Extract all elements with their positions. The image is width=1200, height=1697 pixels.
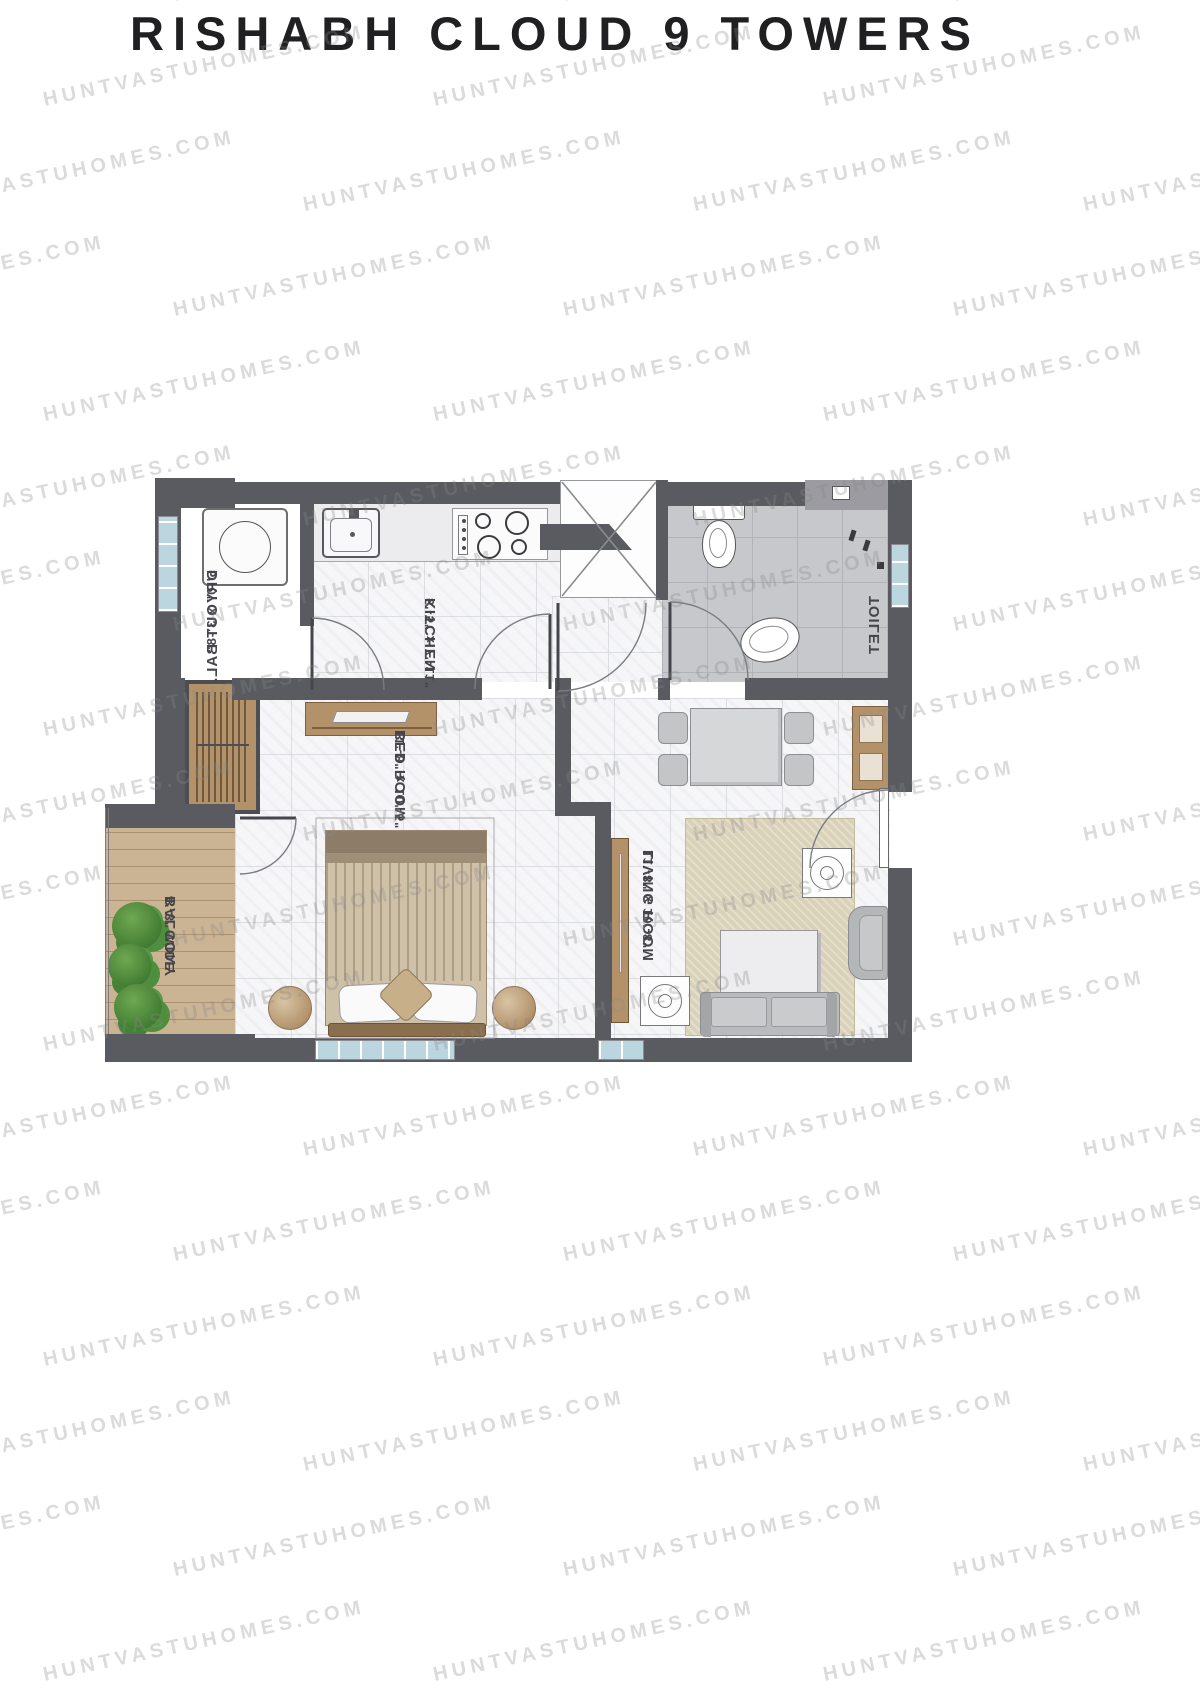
watermark-text: HUNTVASTUHOMES.COM bbox=[1081, 1071, 1200, 1162]
watermark-text: HUNTVASTUHOMES.COM bbox=[0, 126, 237, 217]
room-dims: 5'-5" x 7'-11" bbox=[422, 598, 437, 689]
watermark-text: HUNTVASTUHOMES.COM bbox=[431, 336, 757, 427]
watermark-text: HUNTVASTUHOMES.COM bbox=[821, 1596, 1147, 1687]
kitchen-door-arc bbox=[475, 614, 550, 689]
watermark-text: HUNTVASTUHOMES.COM bbox=[0, 1491, 107, 1582]
floor-plan-page: RISHABH CLOUD 9 TOWERS bbox=[0, 0, 1200, 1697]
watermark-text: HUNTVASTUHOMES.COM bbox=[1081, 1386, 1200, 1477]
watermark-text: HUNTVASTUHOMES.COM bbox=[951, 1491, 1200, 1582]
watermark-text: HUNTVASTUHOMES.COM bbox=[171, 1491, 497, 1582]
watermark-text: HUNTVASTUHOMES.COM bbox=[0, 231, 107, 322]
doors-and-shaft-overlay bbox=[100, 478, 912, 1062]
watermark-text: HUNTVASTUHOMES.COM bbox=[561, 231, 887, 322]
floor-plan: DRYOUT BAL. 5'-0" x 3'-8" KITCHEN 5'-5" … bbox=[100, 478, 912, 1062]
balcony-door-arc bbox=[240, 818, 296, 874]
watermark-text: HUNTVASTUHOMES.COM bbox=[1081, 441, 1200, 532]
dryout-door-arc bbox=[312, 618, 384, 690]
room-dims: 4'-3" WIDE bbox=[162, 896, 177, 972]
watermark-text: HUNTVASTUHOMES.COM bbox=[0, 546, 107, 637]
bed-canopy-outline bbox=[316, 818, 494, 1038]
room-name: TOILET bbox=[866, 596, 883, 655]
toilet-door-arc bbox=[670, 602, 748, 680]
watermark-text: HUNTVASTUHOMES.COM bbox=[171, 231, 497, 322]
watermark-text: HUNTVASTUHOMES.COM bbox=[821, 1281, 1147, 1372]
watermark-text: HUNTVASTUHOMES.COM bbox=[41, 336, 367, 427]
shaft-x-icon bbox=[562, 482, 656, 596]
watermark-text: HUNTVASTUHOMES.COM bbox=[951, 546, 1200, 637]
watermark-text: HUNTVASTUHOMES.COM bbox=[431, 1596, 757, 1687]
watermark-text: HUNTVASTUHOMES.COM bbox=[691, 1071, 1017, 1162]
room-dims: 11'-8" x 10'-8" bbox=[640, 850, 655, 949]
watermark-text: HUNTVASTUHOMES.COM bbox=[1081, 756, 1200, 847]
entrance-door-arc bbox=[558, 603, 646, 691]
watermark-text: HUNTVASTUHOMES.COM bbox=[691, 1386, 1017, 1477]
watermark-text: HUNTVASTUHOMES.COM bbox=[691, 126, 1017, 217]
watermark-text: HUNTVASTUHOMES.COM bbox=[561, 1176, 887, 1267]
watermark-text: HUNTVASTUHOMES.COM bbox=[431, 1281, 757, 1372]
watermark-text: HUNTVASTUHOMES.COM bbox=[301, 1386, 627, 1477]
watermark-text: HUNTVASTUHOMES.COM bbox=[301, 126, 627, 217]
page-title: RISHABH CLOUD 9 TOWERS bbox=[0, 6, 1110, 61]
watermark-text: HUNTVASTUHOMES.COM bbox=[951, 861, 1200, 952]
living-side-door-arc bbox=[810, 790, 888, 868]
watermark-text: HUNTVASTUHOMES.COM bbox=[41, 1281, 367, 1372]
watermark-text: HUNTVASTUHOMES.COM bbox=[41, 1596, 367, 1687]
watermark-text: HUNTVASTUHOMES.COM bbox=[561, 1491, 887, 1582]
watermark-text: HUNTVASTUHOMES.COM bbox=[951, 1176, 1200, 1267]
room-dims: 11'-8" x 10'-5" bbox=[392, 730, 407, 829]
watermark-text: HUNTVASTUHOMES.COM bbox=[1081, 126, 1200, 217]
watermark-text: HUNTVASTUHOMES.COM bbox=[0, 1176, 107, 1267]
room-dims: 5'-0" x 3'-8" bbox=[204, 570, 219, 654]
watermark-text: HUNTVASTUHOMES.COM bbox=[951, 231, 1200, 322]
watermark-text: HUNTVASTUHOMES.COM bbox=[821, 336, 1147, 427]
watermark-text: HUNTVASTUHOMES.COM bbox=[0, 1071, 237, 1162]
watermark-text: HUNTVASTUHOMES.COM bbox=[0, 861, 107, 952]
watermark-text: HUNTVASTUHOMES.COM bbox=[171, 1176, 497, 1267]
watermark-text: HUNTVASTUHOMES.COM bbox=[301, 1071, 627, 1162]
watermark-text: HUNTVASTUHOMES.COM bbox=[0, 1386, 237, 1477]
